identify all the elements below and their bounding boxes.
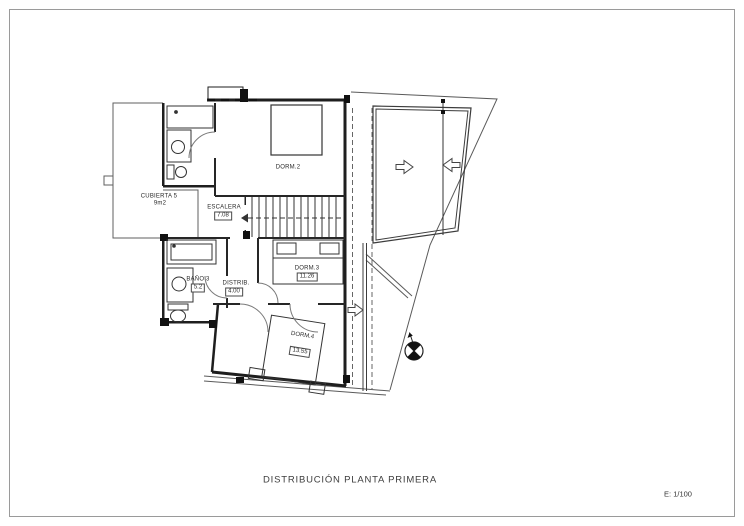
sink-icon: [172, 141, 185, 154]
cubierta-outline: [104, 103, 198, 238]
terrace-dashed-lines: [353, 108, 373, 390]
vanity-icon: [167, 130, 191, 162]
toilet-bowl-icon: [176, 167, 187, 178]
slope-arrow-right-icon: [348, 304, 363, 316]
room-label-escalera: ESCALERA: [207, 205, 241, 212]
bed-dorm2: [271, 105, 322, 155]
vanity-icon: [167, 268, 193, 302]
floor-plan-drawing: [0, 0, 744, 526]
exterior-walls: [163, 87, 346, 386]
room-area-bano3: 5.2: [191, 284, 205, 293]
shower-head-icon: [175, 111, 178, 114]
stairs-direction-arrow: [241, 214, 248, 223]
room-area-cubierta5: 9m2: [154, 201, 166, 208]
room-area-escalera: 7.08: [214, 212, 232, 221]
scale-label: E: 1/100: [664, 490, 692, 499]
terrace-outline: [204, 92, 497, 395]
drawing-title: DISTRIBUCIÓN PLANTA PRIMERA: [263, 475, 437, 486]
toilet-tank-icon: [168, 304, 188, 310]
room-label-distrib: DISTRIB.: [223, 281, 250, 288]
room-label-bano3: BAÑO 3: [186, 277, 209, 284]
room-area-dorm4: 13.55: [289, 346, 311, 358]
room-label-dorm3: DORM.3: [295, 266, 320, 273]
room-area-dorm3: 11.26: [297, 273, 318, 282]
room-label-cubierta5: CUBIERTA 5: [141, 194, 177, 201]
slope-arrow-left-icon: [443, 159, 460, 172]
drawing-sheet: CUBIERTA 5 9m2 ESCALERA 7.08 DORM.2 DORM…: [0, 0, 744, 526]
slope-arrow-right-icon: [396, 161, 413, 174]
bathroom-top-fixtures: [167, 106, 213, 179]
shower-head-icon: [173, 245, 176, 248]
toilet-bowl-icon: [171, 310, 186, 322]
room-area-distrib: 4.00: [225, 288, 243, 297]
north-arrow-icon: [405, 333, 423, 361]
stairs: [248, 197, 344, 237]
door-swings: [189, 132, 318, 332]
room-label-group-dorm4: DORM.4 13.55: [288, 331, 315, 359]
toilet-tank-icon: [167, 165, 174, 179]
sink-icon: [172, 277, 186, 291]
room-label-dorm2: DORM.2: [276, 165, 301, 172]
